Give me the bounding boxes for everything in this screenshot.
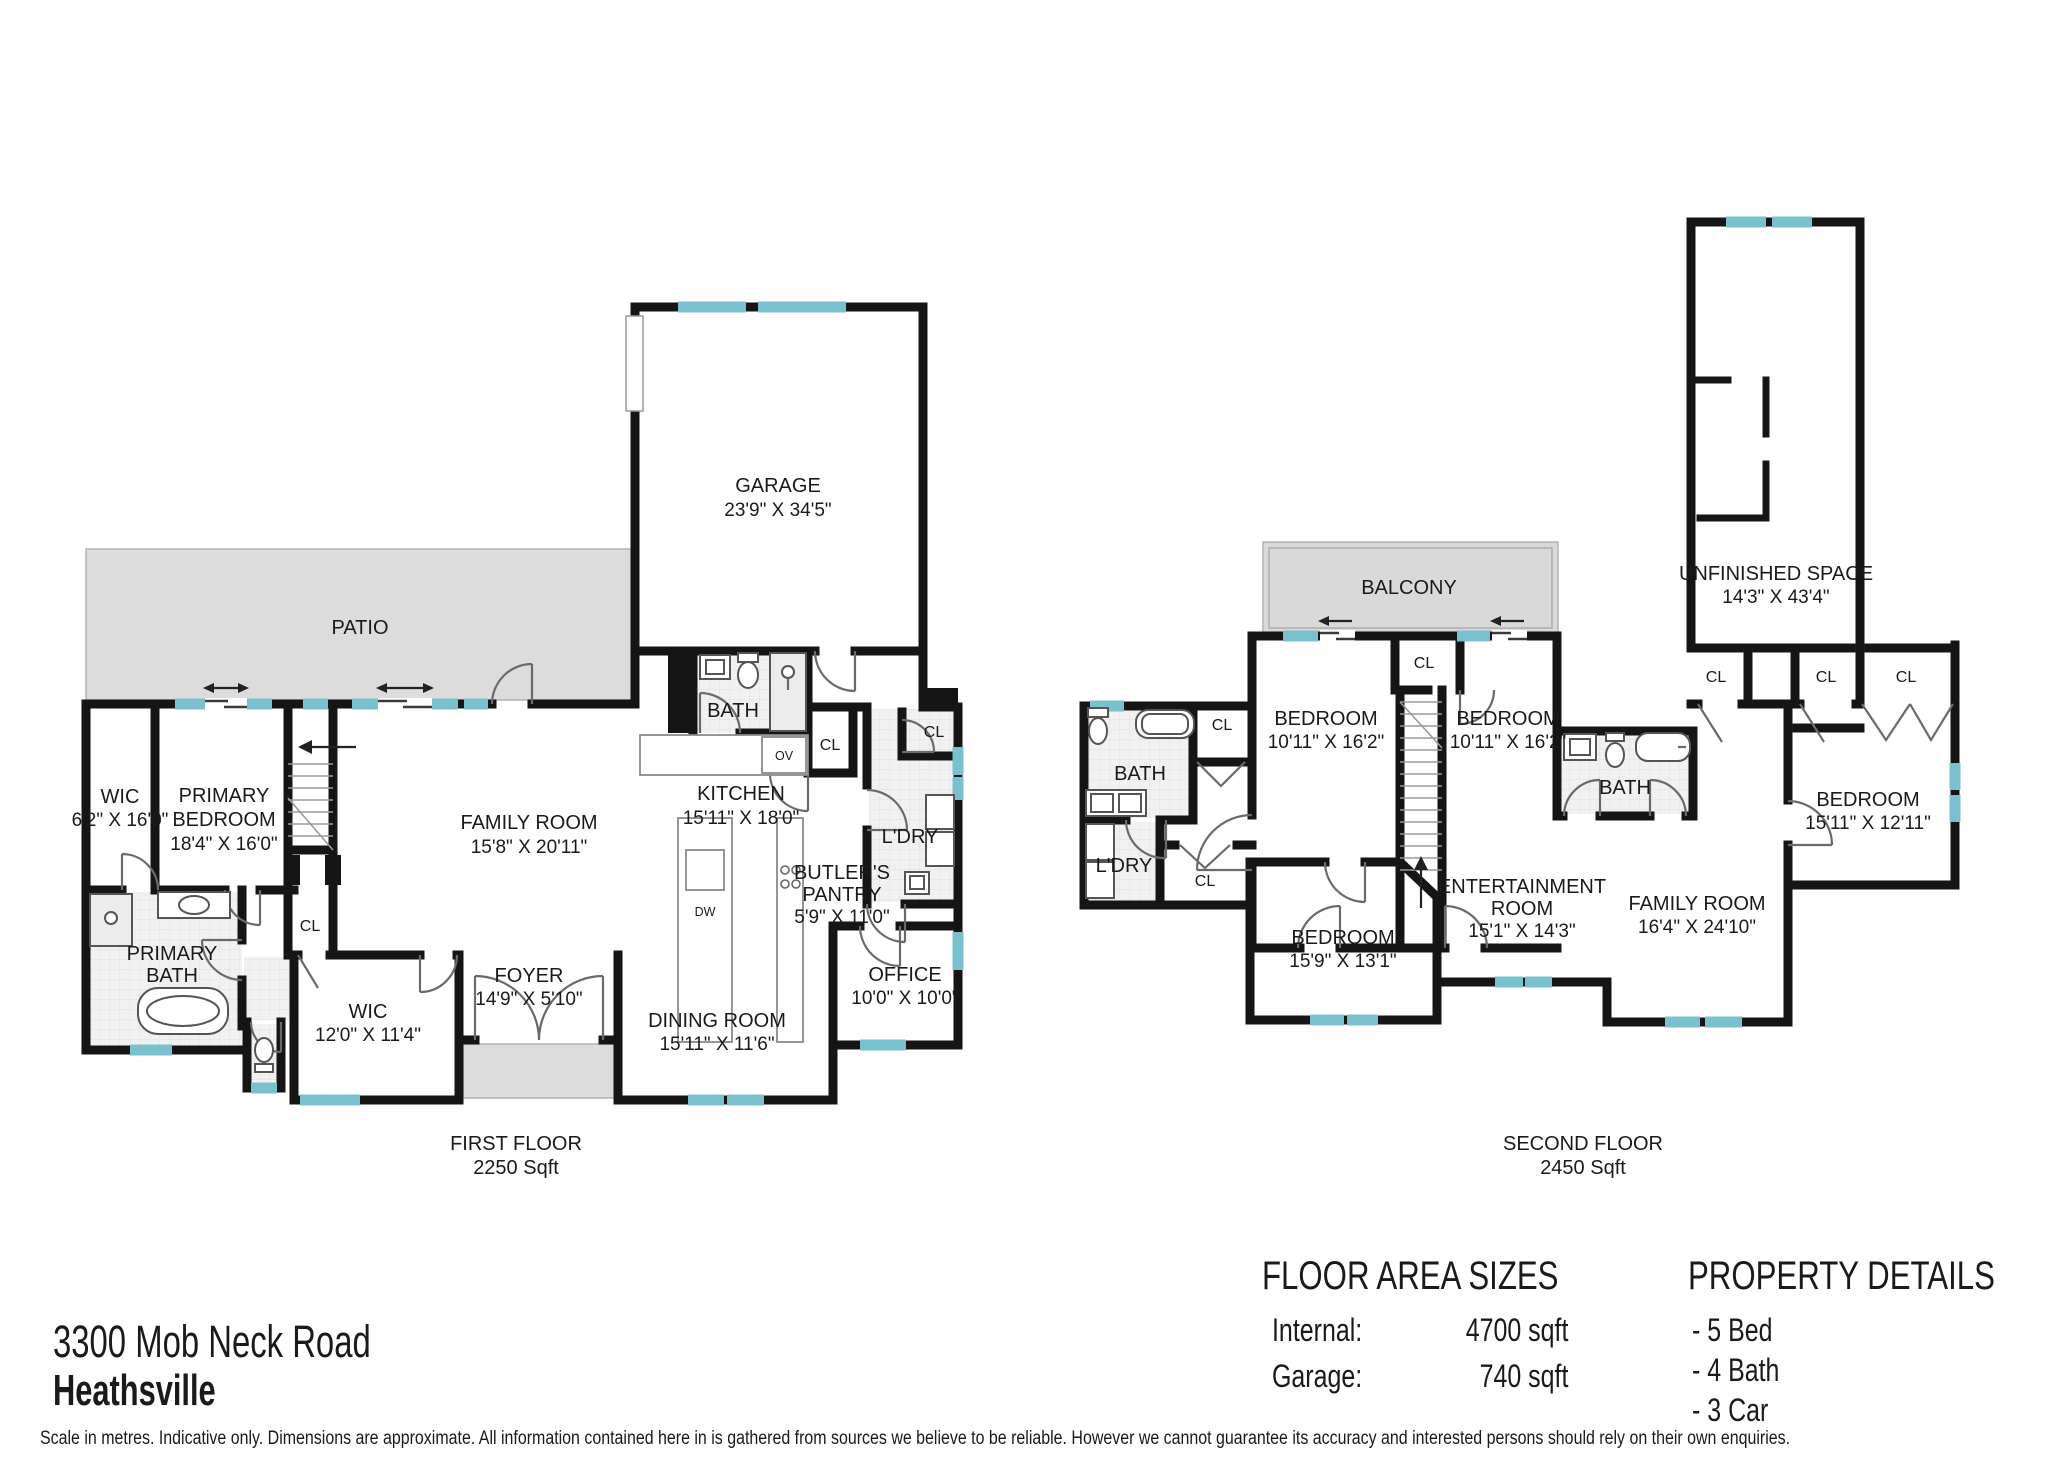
property-detail-car: - 3 Car [1692,1392,1768,1429]
room-label-wic-b: WIC [349,1001,388,1023]
room-dims-family: 15'8" X 20'11" [471,837,588,858]
room-dims-butlers: 5'9" X 11'0" [794,907,889,928]
bath-shower-icon [770,653,806,731]
room-label-dining: DINING ROOM [648,1010,786,1032]
first-floor-title: FIRST FLOOR [450,1133,582,1155]
entry-porch-area [462,1044,615,1098]
address-line-1: 3300 Mob Neck Road [53,1316,371,1368]
toilet-room-toilet-icon [255,1038,273,1072]
room-dims-entertainment: 15'1" X 14'3" [1468,921,1575,942]
room-label-bedroom-right: BEDROOM [1816,789,1919,811]
floor-area-row-garage: Garage: 740 sqft [1272,1358,1568,1395]
room-label-entertainment-2: ROOM [1491,898,1553,920]
room-label-primary-bath-1: PRIMARY [127,943,218,965]
second-floor-plan: BALCONY BEDROOM 10'11" X 16'2" CL BEDROO… [1084,222,1955,1179]
room-dims-bedroom-b: 10'11" X 16'2" [1450,732,1567,753]
room-label-butlers-2: PANTRY [802,884,881,906]
property-details-title: PROPERTY DETAILS [1688,1254,1995,1299]
dishwasher-label: DW [695,905,716,919]
floor-area-label-garage: Garage: [1272,1358,1362,1395]
address-line-2: Heathsville [53,1366,216,1416]
room-label-bath: BATH [707,700,759,722]
floorplan-drawing: PATIO GARAGE 23'9" X 34'5" BATH OV KITCH… [0,0,2048,1458]
bath-sink-icon [700,655,730,679]
bath-toilet-icon [738,653,758,688]
room-label-unfinished: UNFINISHED SPACE [1679,563,1873,585]
pantry-counter [777,818,803,1042]
bath-b-toilet-icon [1606,733,1624,767]
room-dims-primary-bedroom: 18'4" X 16'0" [170,834,277,855]
room-dims-bedroom-right: 15'11" X 12'11" [1805,813,1931,834]
room-label-bath-b: BATH [1599,777,1651,799]
dishwasher-icon [686,850,724,890]
bath-b-tub-icon [1636,733,1690,761]
floor-area-label-internal: Internal: [1272,1312,1362,1349]
floorplan-page: PATIO GARAGE 23'9" X 34'5" BATH OV KITCH… [0,0,2048,1458]
room-label-kitchen: KITCHEN [697,783,785,805]
room-dims-foyer: 14'9" X 5'10" [475,989,582,1010]
bath-a-tub-icon [1136,710,1194,738]
second-floor-area: 2450 Sqft [1540,1157,1626,1179]
floor-area-value-garage: 740 sqft [1480,1358,1569,1395]
room-label-primary-bedroom-1: PRIMARY [179,785,270,807]
closet-label-row-c: CL [1896,669,1917,686]
closet-label-a: CL [820,737,841,754]
room-dims-wic-a: 6'2" X 16'0" [72,810,169,831]
room-label-wic-a: WIC [101,786,140,808]
room-label-entertainment-1: ENTERTAINMENT [1438,876,1606,898]
floor-area-row-internal: Internal: 4700 sqft [1272,1312,1568,1349]
room-label-bath-a: BATH [1114,763,1166,785]
room-label-balcony: BALCONY [1361,577,1457,599]
bath-b-sink-icon [1564,734,1596,760]
primary-shower-icon [90,894,132,946]
room-label-bedroom-b: BEDROOM [1456,708,1559,730]
room-dims-office: 10'0" X 10'0" [851,988,958,1009]
first-floor-area: 2250 Sqft [473,1157,559,1179]
room-dims-kitchen: 15'11" X 18'0" [683,808,800,829]
room-dims-bedroom-a: 10'11" X 16'2" [1268,732,1385,753]
room-label-butlers-1: BUTLER'S [794,862,890,884]
room-label-office: OFFICE [868,964,941,986]
bath-hall-tile [244,957,292,1020]
room-label-family: FAMILY ROOM [460,812,597,834]
floor-area-title: FLOOR AREA SIZES [1262,1254,1558,1299]
bath-a-toilet-icon [1088,708,1108,744]
closet-label-hall: CL [1195,873,1216,890]
floor-area-value-internal: 4700 sqft [1466,1312,1569,1349]
room-label-primary-bedroom-2: BEDROOM [172,809,275,831]
primary-vanity-icon [158,892,230,918]
unfinished-partition-walls [1691,380,1766,518]
room-label-laundry: L'DRY [882,826,939,848]
room-dims-bedroom-back: 15'9" X 13'1" [1289,951,1396,972]
second-floor-stairs [1400,702,1442,908]
property-detail-bath: - 4 Bath [1692,1352,1779,1389]
first-floor-stairs [288,740,356,850]
primary-tub-icon [138,988,228,1034]
bath-a-vanity-icon [1086,790,1146,816]
garage-door-icon [626,316,643,411]
closet-label-stairs: CL [300,918,321,935]
room-dims-wic-b: 12'0" X 11'4" [315,1025,421,1046]
first-floor-plan: PATIO GARAGE 23'9" X 34'5" BATH OV KITCH… [72,307,959,1179]
disclaimer-text: Scale in metres. Indicative only. Dimens… [40,1428,1790,1450]
room-label-primary-bath-2: BATH [146,965,198,987]
closet-label-row-a: CL [1706,669,1727,686]
room-dims-unfinished: 14'3" X 43'4" [1722,587,1829,608]
closet-label-top: CL [1414,655,1435,672]
room-label-bedroom-back: BEDROOM [1291,927,1394,949]
property-detail-bed: - 5 Bed [1692,1312,1772,1349]
closet-label-row-b: CL [1816,669,1837,686]
room-label-foyer: FOYER [495,965,564,987]
room-dims-dining: 15'11" X 11'6" [659,1034,774,1055]
room-label-laundry-2: L'DRY [1096,855,1153,877]
closet-label-b: CL [924,724,945,741]
room-dims-family-2: 16'4" X 24'10" [1638,917,1756,938]
second-floor-title: SECOND FLOOR [1503,1133,1663,1155]
room-label-family-2: FAMILY ROOM [1628,893,1765,915]
oven-label: OV [775,749,794,763]
room-dims-garage: 23'9" X 34'5" [724,500,831,521]
closet-label-bath: CL [1212,717,1233,734]
room-label-garage: GARAGE [735,475,821,497]
room-label-bedroom-a: BEDROOM [1274,708,1377,730]
room-label-patio: PATIO [331,617,388,639]
